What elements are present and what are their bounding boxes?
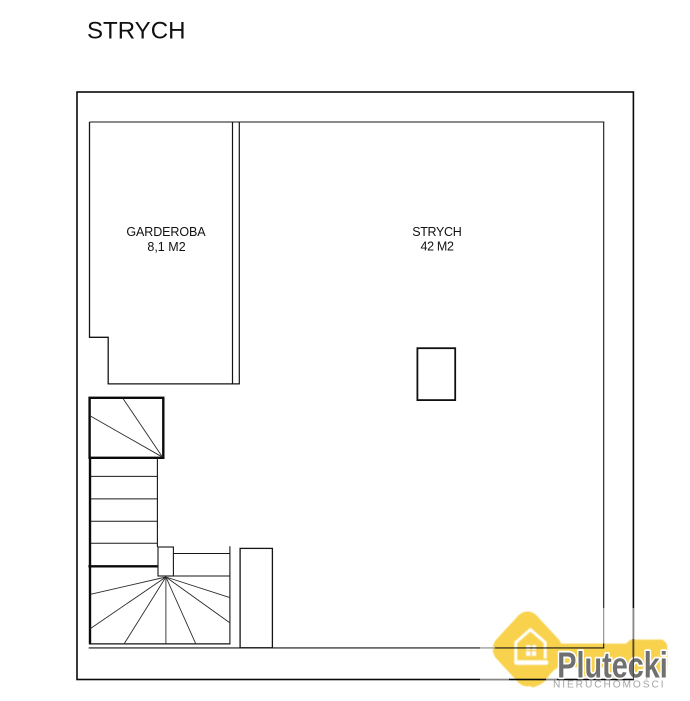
svg-text:42 M2: 42 M2 xyxy=(421,239,454,253)
svg-text:8,1 M2: 8,1 M2 xyxy=(147,240,185,254)
svg-text:NIERUCHOMOŚCI: NIERUCHOMOŚCI xyxy=(553,677,665,690)
svg-text:STRYCH: STRYCH xyxy=(87,18,186,45)
svg-text:STRYCH: STRYCH xyxy=(412,225,462,239)
svg-text:GARDEROBA: GARDEROBA xyxy=(126,225,206,239)
